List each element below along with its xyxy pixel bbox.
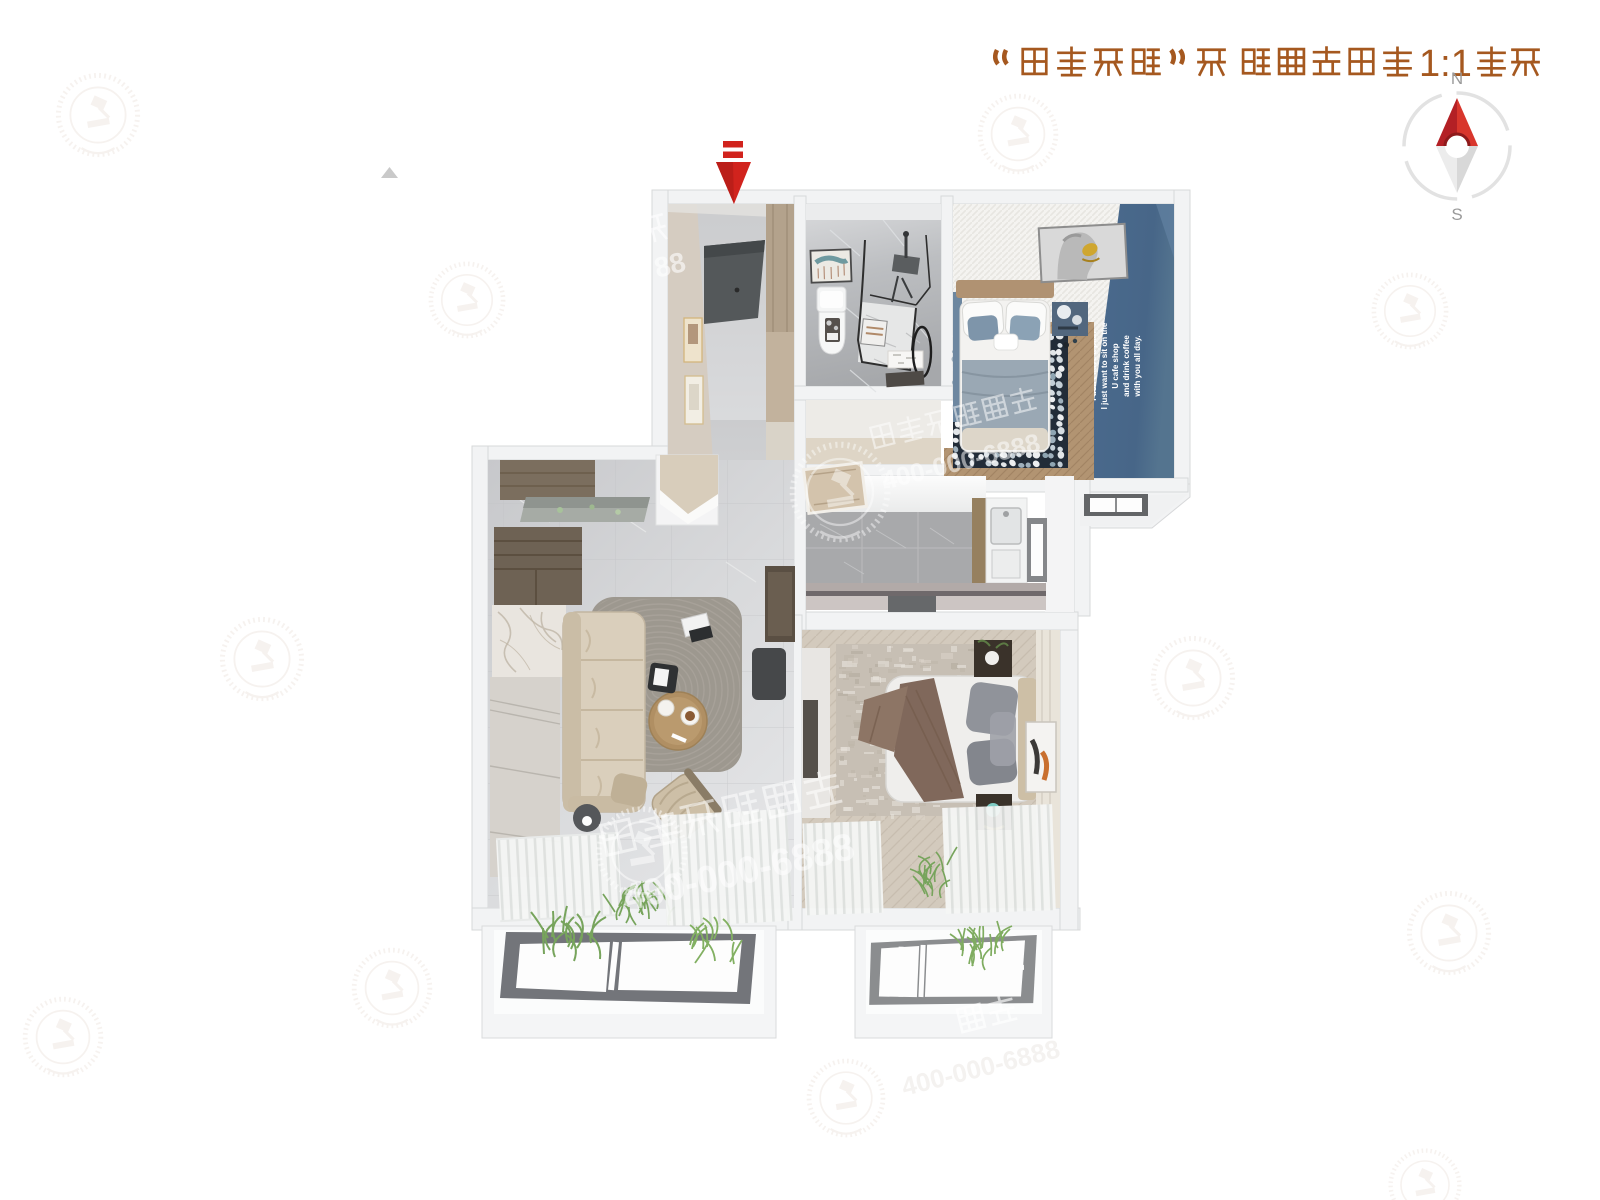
svg-text:U cafe shop: U cafe shop [1111,343,1120,388]
svg-text:with you all day.: with you all day. [1133,335,1142,397]
svg-text:1:1: 1:1 [1419,43,1472,85]
svg-text:S: S [1451,205,1462,224]
svg-text:and drink coffee: and drink coffee [1122,335,1131,397]
svg-text:N: N [1451,69,1463,88]
svg-text:I just want to sit on the: I just want to sit on the [1100,322,1109,409]
